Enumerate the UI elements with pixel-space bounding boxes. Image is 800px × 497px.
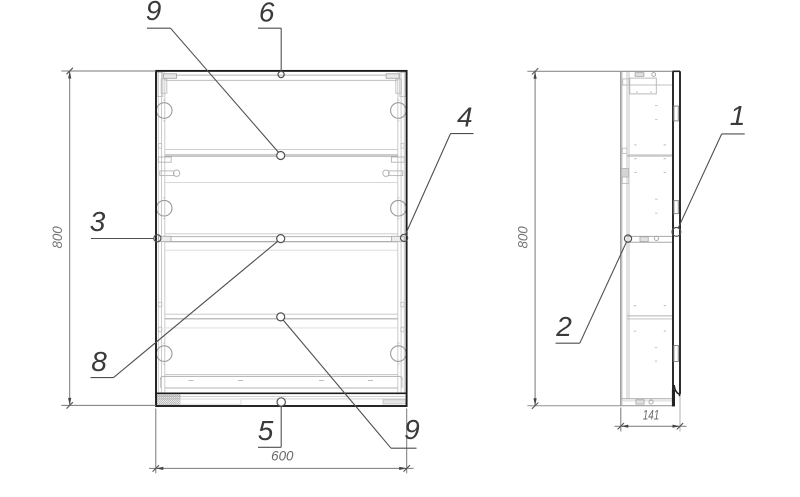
svg-text:3: 3 (90, 206, 106, 237)
svg-text:5: 5 (258, 415, 274, 446)
svg-text:9: 9 (404, 414, 420, 445)
svg-text:4: 4 (457, 102, 473, 133)
svg-text:800: 800 (49, 226, 65, 249)
svg-text:141: 141 (643, 406, 660, 422)
svg-text:9: 9 (146, 0, 162, 26)
svg-text:8: 8 (91, 346, 107, 377)
svg-text:800: 800 (515, 226, 531, 249)
svg-text:2: 2 (555, 311, 572, 342)
svg-text:1: 1 (730, 100, 746, 131)
svg-text:6: 6 (259, 0, 275, 28)
svg-text:600: 600 (271, 448, 294, 464)
